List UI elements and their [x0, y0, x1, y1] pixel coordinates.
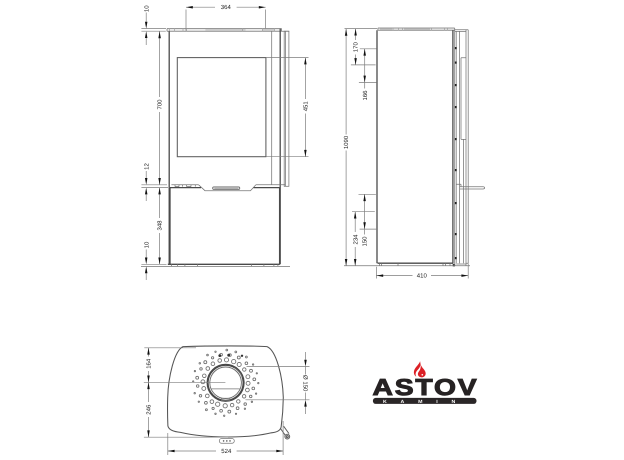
svg-text:12: 12 — [143, 163, 150, 170]
svg-text:234: 234 — [352, 234, 359, 245]
svg-text:524: 524 — [221, 448, 232, 455]
svg-text:364: 364 — [221, 4, 232, 11]
svg-text:10: 10 — [143, 5, 150, 12]
svg-text:246: 246 — [146, 404, 153, 415]
svg-text:Ø 150: Ø 150 — [301, 375, 308, 392]
svg-text:150: 150 — [362, 236, 369, 247]
svg-text:170: 170 — [353, 42, 360, 53]
svg-text:410: 410 — [417, 273, 428, 280]
svg-text:ASTOV: ASTOV — [373, 374, 479, 400]
svg-text:1090: 1090 — [343, 135, 350, 149]
svg-text:KAMIN: KAMIN — [383, 399, 469, 404]
svg-text:348: 348 — [157, 220, 164, 231]
svg-text:166: 166 — [362, 90, 369, 101]
svg-text:10: 10 — [143, 241, 150, 248]
svg-text:164: 164 — [146, 358, 153, 369]
svg-text:451: 451 — [303, 101, 310, 112]
svg-text:700: 700 — [157, 99, 164, 110]
